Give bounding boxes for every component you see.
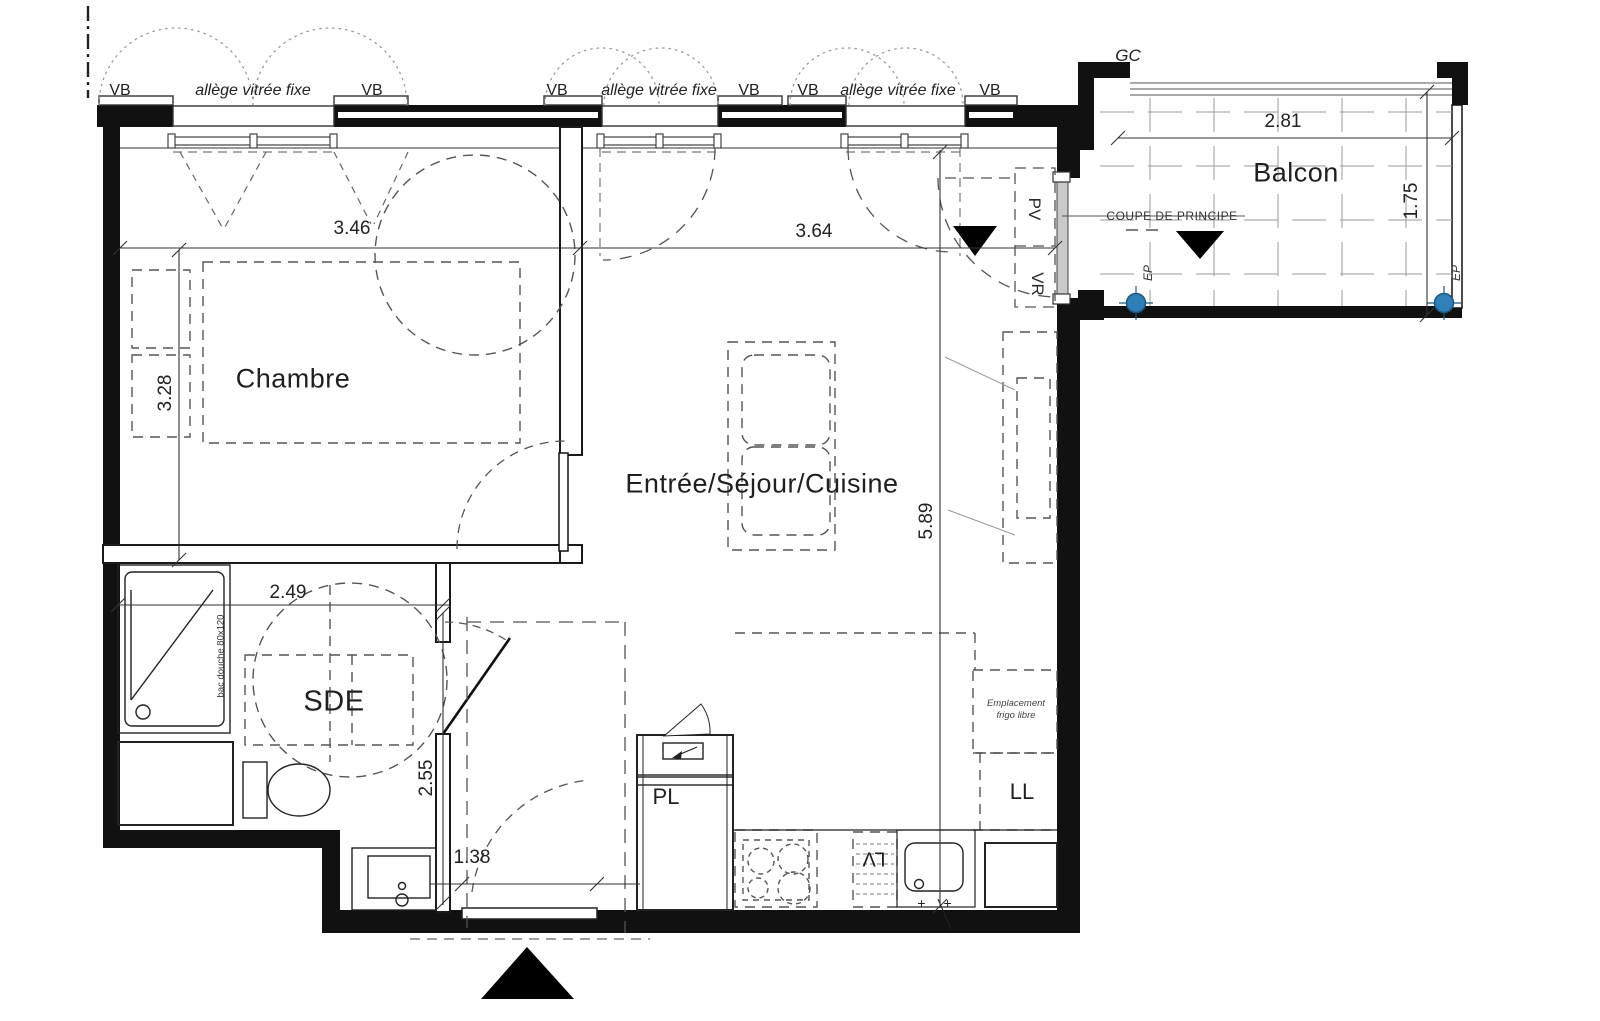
label-vr: VR xyxy=(1027,272,1047,296)
room-label-sde: SDE xyxy=(303,686,364,719)
window-label-vb-1: VB xyxy=(109,82,130,100)
balcony-railing xyxy=(1130,83,1452,95)
sde-cabinet xyxy=(118,742,233,825)
turning-circle-chambre xyxy=(375,155,575,355)
dim-chambre-depth: 3.28 xyxy=(155,375,177,412)
dim-sde-width: 2.49 xyxy=(270,582,307,604)
sink xyxy=(905,843,963,891)
electrical-panel xyxy=(663,743,703,759)
floor-plan: VB allège vitrée fixe VB VB allège vitré… xyxy=(0,0,1600,1021)
fixtures xyxy=(118,565,1057,929)
sde-door-leaf xyxy=(443,638,510,734)
fridge-space-line1: Emplacement xyxy=(987,698,1045,710)
dishwasher-box xyxy=(853,832,897,907)
room-label-sejour: Entrée/Séjour/Cuisine xyxy=(625,469,898,500)
section-arrow-balcony xyxy=(1176,231,1224,259)
dim-sejour-depth: 5.89 xyxy=(916,503,938,540)
dim-sde-depth: 2.55 xyxy=(416,760,438,797)
window-label-vb-2: VB xyxy=(361,82,382,100)
window-label-vb-3: VB xyxy=(546,82,567,100)
window-label-fixed-3: allège vitrée fixe xyxy=(840,82,956,100)
window-label-fixed-2: allège vitrée fixe xyxy=(601,82,717,100)
fridge-space-line2: frigo libre xyxy=(987,710,1045,722)
label-ep-left: EP xyxy=(1141,265,1155,281)
bed xyxy=(203,262,520,443)
label-gc: GC xyxy=(1115,46,1141,66)
wardrobe xyxy=(132,270,190,348)
dim-balcony-depth: 1.75 xyxy=(1401,183,1423,220)
entrance-arrow xyxy=(481,947,574,999)
label-ep-right: EP xyxy=(1449,265,1463,281)
closet-pl xyxy=(637,704,733,910)
window-label-vb-5: VB xyxy=(797,82,818,100)
kitchen-counter xyxy=(1003,332,1057,563)
toilet-bowl xyxy=(268,764,330,816)
room-label-chambre: Chambre xyxy=(236,364,351,395)
label-fridge-space: Emplacement frigo libre xyxy=(987,698,1045,722)
counter-leader-lines xyxy=(945,357,1015,535)
window-label-vb-4: VB xyxy=(738,82,759,100)
label-shower-tray: bac douche 80x120 xyxy=(216,615,227,698)
label-dishwasher-lv: LV xyxy=(863,847,886,870)
window-label-vb-6: VB xyxy=(979,82,1000,100)
sofa xyxy=(728,342,835,550)
washbasin xyxy=(352,848,436,910)
label-closet-pl: PL xyxy=(653,784,680,810)
dim-balcony-width: 2.81 xyxy=(1265,111,1302,133)
room-label-balcon: Balcon xyxy=(1253,158,1339,189)
dim-entrance-door: 1.38 xyxy=(454,847,491,869)
label-section: COUPE DE PRINCIPE xyxy=(1106,209,1237,223)
label-pv: PV xyxy=(1024,198,1044,221)
entrance-door-leaf xyxy=(462,908,597,919)
dim-sejour-width: 3.64 xyxy=(796,221,833,243)
plan-linework xyxy=(0,0,1600,1021)
toilet-tank xyxy=(243,762,267,818)
turning-circle-sde xyxy=(253,583,447,777)
washer-box xyxy=(985,843,1057,907)
label-washer-ll: LL xyxy=(1010,779,1034,805)
partitions xyxy=(103,127,582,912)
label-sink-taps: + + xyxy=(917,895,958,911)
dim-chambre-width: 3.46 xyxy=(334,218,371,240)
window-label-fixed-1: allège vitrée fixe xyxy=(195,82,311,100)
doors xyxy=(180,148,1057,939)
chambre-door-leaf xyxy=(559,453,568,551)
